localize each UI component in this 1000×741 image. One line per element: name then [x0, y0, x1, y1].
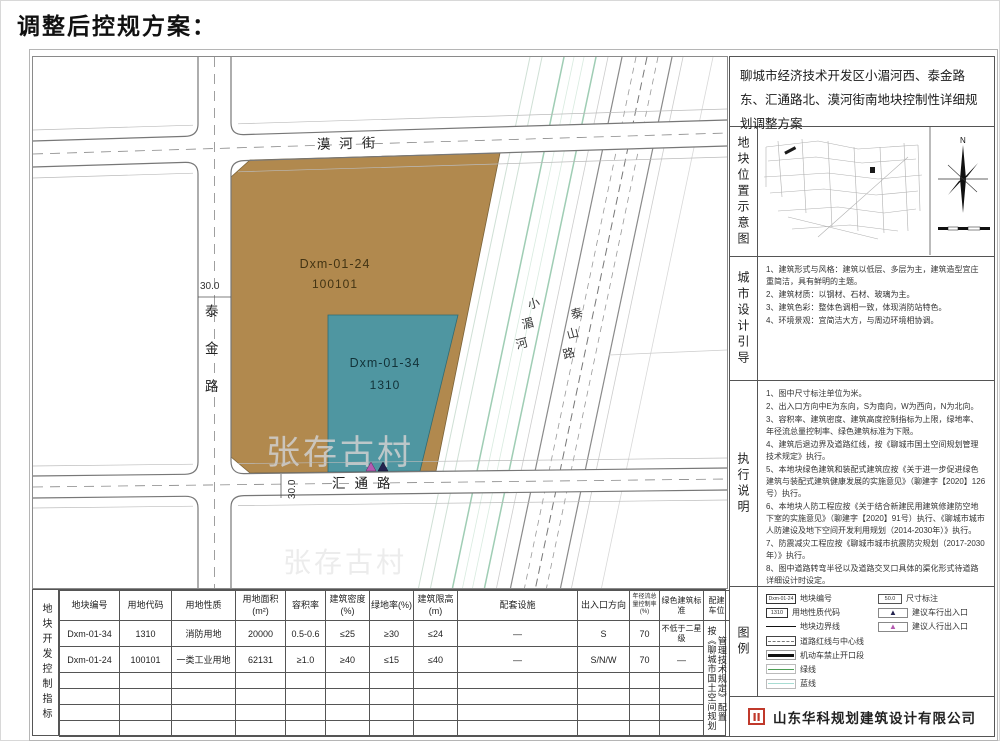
svg-text:金: 金	[205, 341, 219, 356]
parcel-id-swatch: Dxm-01-24	[766, 594, 796, 604]
legend-item: 道路红线与中心线	[766, 636, 878, 647]
legend-item: 50.0 尺寸标注	[878, 593, 990, 604]
svg-text:泰: 泰	[569, 305, 584, 322]
parcel-teal-code: 1310	[370, 378, 401, 392]
company-name: 山东华科规划建筑设计有限公司	[773, 707, 976, 727]
execution-note: 8、图中道路转弯半径以及道路交叉口具体的渠化形式待道路详细设计时设定。	[766, 563, 986, 586]
col-header: 用地性质	[172, 591, 236, 621]
location-sketch: N	[758, 127, 994, 255]
table-cell: S/N/W	[578, 647, 630, 673]
svg-text:小: 小	[526, 295, 541, 312]
table-cell: S	[578, 621, 630, 647]
dimension-swatch: 50.0	[878, 594, 902, 604]
table-cell: 20000	[236, 621, 286, 647]
table-cell: 0.5-0.6	[286, 621, 326, 647]
plan-title-block: 聊城市经济技术开发区小湄河西、泰金路东、汇通路北、漠河街南地块控制性详细规划调整…	[730, 57, 994, 127]
city-street-sketch	[764, 139, 922, 239]
col-header: 用地代码	[120, 591, 172, 621]
street-label-huitong: 汇通路	[332, 476, 400, 491]
legend-label: 机动车禁止开口段	[800, 650, 864, 661]
table-row-empty	[60, 689, 730, 705]
legend-item: 地块边界线	[766, 621, 878, 632]
compass-rose: N	[938, 136, 988, 213]
design-guidance-section: 城市设计引导 1、建筑形式与风格：建筑以低层、多层为主，建筑造型宜庄重简洁，具有…	[730, 257, 994, 381]
table-row-empty	[60, 721, 730, 737]
scale-bar	[938, 227, 990, 230]
col-header: 出入口方向	[578, 591, 630, 621]
street-label-mohe: 漠河街	[317, 135, 385, 152]
table-side-label: 地块开发控制指标	[33, 590, 59, 735]
table-row-empty	[60, 705, 730, 721]
table-cell: 62131	[236, 647, 286, 673]
col-header: 用地面积(m²)	[236, 591, 286, 621]
table-cell: —	[458, 621, 578, 647]
watermark-text-faint: 张存古村	[283, 547, 407, 578]
street-label-taijin: 泰 金 路	[205, 304, 219, 394]
col-header: 容积率	[286, 591, 326, 621]
design-note: 3、建筑色彩：整体色调相一致，体现消防站特色。	[766, 302, 986, 314]
legend-item: ▲ 建议车行出入口	[878, 607, 990, 618]
table-cell: 70	[630, 621, 660, 647]
col-header: 绿色建筑标准	[660, 591, 704, 621]
table-cell: ≤40	[414, 647, 458, 673]
svg-text:泰: 泰	[205, 304, 219, 319]
vehicle-entrance-icon: ▲	[878, 608, 908, 618]
control-indicator-table: 地块开发控制指标 地块编号 用地代码 用地性质 用地面积(m²) 容积率 建筑密…	[32, 589, 726, 736]
table-cell: 一类工业用地	[172, 647, 236, 673]
table-cell: Dxm-01-24	[60, 647, 120, 673]
table-row-empty	[60, 673, 730, 689]
sketch-accent-mark	[784, 146, 796, 154]
table-row: Dxm-01-34 1310 消防用地 20000 0.5-0.6 ≤25 ≥3…	[60, 621, 730, 647]
landuse-code-swatch: 1310	[766, 608, 788, 618]
svg-text:路: 路	[205, 379, 219, 394]
svg-text:河: 河	[514, 335, 529, 352]
table-cell: ≥1.0	[286, 647, 326, 673]
table-cell: —	[458, 647, 578, 673]
legend-section: 图例 Dxm-01-24 地块编号 1310 用地性质代码 地块边界线	[730, 587, 994, 697]
parcel-teal-id: Dxm-01-34	[350, 356, 421, 370]
parking-note-cell: 按《聊城市国土空间规划管理技术规定》配置	[704, 621, 730, 737]
legend-item: Dxm-01-24 地块编号	[766, 593, 878, 604]
table-header-row: 地块编号 用地代码 用地性质 用地面积(m²) 容积率 建筑密度(%) 绿地率(…	[60, 591, 730, 621]
svg-text:湄: 湄	[520, 315, 535, 332]
design-section-label: 城市设计引导	[730, 257, 758, 380]
design-note: 4、环境景观：宜简洁大方，与周边环境相协调。	[766, 315, 986, 327]
table-cell: ≤24	[414, 621, 458, 647]
legend-label: 地块编号	[800, 593, 832, 604]
legend-label: 用地性质代码	[792, 607, 840, 618]
table-cell: ≥30	[370, 621, 414, 647]
table-cell: 70	[630, 647, 660, 673]
legend-label: 蓝线	[800, 678, 816, 689]
col-header: 建筑密度(%)	[326, 591, 370, 621]
company-logo-icon	[748, 708, 765, 725]
execution-note: 3、容积率、建筑密度、建筑高度控制指标为上限，绿地率、年径流总量控制率、绿色建筑…	[766, 414, 986, 438]
legend-item: 1310 用地性质代码	[766, 607, 878, 618]
parcel-boundary-swatch	[766, 622, 796, 632]
location-section-label: 地块位置示意图	[730, 127, 758, 256]
company-bar: 山东华科规划建筑设计有限公司	[730, 697, 994, 736]
green-line-swatch	[766, 664, 796, 674]
legend-label: 建议车行出入口	[912, 607, 968, 618]
legend-label: 道路红线与中心线	[800, 636, 864, 647]
info-panel: 聊城市经济技术开发区小湄河西、泰金路东、汇通路北、漠河街南地块控制性详细规划调整…	[729, 56, 995, 737]
parcel-brown-code: 100101	[312, 277, 358, 291]
table-cell: ≤15	[370, 647, 414, 673]
execution-note: 1、图中尺寸标注单位为米。	[766, 388, 986, 400]
watermark-text: 张存古村	[266, 434, 414, 472]
road-redline-swatch	[766, 636, 796, 646]
dimension-taijin: 30.0	[200, 281, 220, 292]
table-cell: 消防用地	[172, 621, 236, 647]
table-cell: ≥40	[326, 647, 370, 673]
design-note: 2、建筑材质：以钢材、石材、玻璃为主。	[766, 289, 986, 301]
table-cell: Dxm-01-34	[60, 621, 120, 647]
execution-note: 5、本地块绿色建筑和装配式建筑应按《关于进一步促进绿色建筑与装配式建筑健康发展的…	[766, 464, 986, 500]
legend-item: ▲ 建议人行出入口	[878, 621, 990, 632]
execution-note: 4、建筑后退边界及道路红线，按《聊城市国土空间规划管理技术规定》执行。	[766, 439, 986, 463]
legend-item: 机动车禁止开口段	[766, 650, 878, 661]
legend-label: 绿线	[800, 664, 816, 675]
page-title: 调整后控规方案：	[17, 7, 217, 41]
no-opening-segment-swatch	[766, 650, 796, 660]
execution-note: 6、本地块人防工程应按《关于结合新建民用建筑修建防空地下室的实施意见》（聊建字【…	[766, 501, 986, 537]
col-header: 年径流总量控制率(%)	[630, 591, 660, 621]
legend-left-column: Dxm-01-24 地块编号 1310 用地性质代码 地块边界线 道路红线与中心…	[766, 593, 878, 696]
table-cell: 100101	[120, 647, 172, 673]
col-header: 配套设施	[458, 591, 578, 621]
plan-map: 张存古村 张存古村	[32, 56, 728, 589]
execution-note: 2、出入口方向中E为东向，S为南向，W为西向，N为北向。	[766, 401, 986, 413]
dimension-huitong: 30.0	[287, 479, 298, 499]
parcel-brown-id: Dxm-01-24	[300, 257, 371, 271]
blue-line-swatch	[766, 679, 796, 689]
table-row: Dxm-01-24 100101 一类工业用地 62131 ≥1.0 ≥40 ≤…	[60, 647, 730, 673]
table-cell: ≤25	[326, 621, 370, 647]
compass-north-label: N	[960, 136, 966, 145]
execution-note: 7、防震减灾工程应按《聊城市城市抗震防灾规划（2017-2030年）》执行。	[766, 538, 986, 562]
execution-section-label: 执行说明	[730, 381, 758, 586]
plan-sheet: 张存古村 张存古村	[29, 49, 998, 741]
plan-map-drawing: 张存古村 张存古村	[33, 57, 727, 588]
col-header: 地块编号	[60, 591, 120, 621]
svg-text:路: 路	[561, 344, 576, 362]
legend-label: 地块边界线	[800, 621, 840, 632]
legend-right-column: 50.0 尺寸标注 ▲ 建议车行出入口 ▲ 建议人行出入口	[878, 593, 990, 696]
table-cell: —	[660, 647, 704, 673]
legend-label: 尺寸标注	[906, 593, 938, 604]
col-header: 配建车位	[704, 591, 730, 621]
execution-notes-section: 执行说明 1、图中尺寸标注单位为米。 2、出入口方向中E为东向，S为南向，W为西…	[730, 381, 994, 587]
table-cell: 1310	[120, 621, 172, 647]
col-header: 绿地率(%)	[370, 591, 414, 621]
legend-item: 蓝线	[766, 678, 878, 689]
svg-text:山: 山	[565, 325, 580, 342]
legend-item: 绿线	[766, 664, 878, 675]
col-header: 建筑限高(m)	[414, 591, 458, 621]
design-note: 1、建筑形式与风格：建筑以低层、多层为主，建筑造型宜庄重简洁，具有鲜明的主题。	[766, 264, 986, 288]
pedestrian-entrance-icon: ▲	[878, 622, 908, 632]
site-location-marker	[870, 167, 875, 173]
location-section: 地块位置示意图	[730, 127, 994, 257]
legend-section-label: 图例	[730, 587, 758, 696]
table-cell: 不低于二星级	[660, 621, 704, 647]
legend-label: 建议人行出入口	[912, 621, 968, 632]
